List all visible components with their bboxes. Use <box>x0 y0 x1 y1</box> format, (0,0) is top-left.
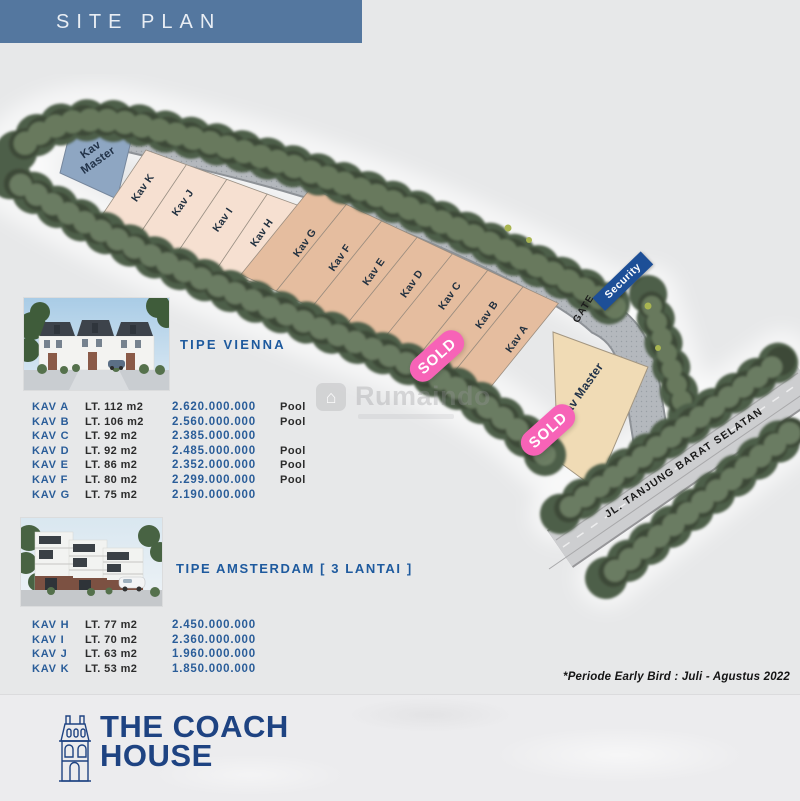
price-cell: 2.560.000.000 <box>172 416 280 428</box>
kav-cell: KAV D <box>32 445 85 457</box>
pool-cell: Pool <box>280 416 322 428</box>
watermark-subline <box>358 414 454 419</box>
table-row: KAV G LT. 75 m2 2.190.000.000 <box>32 487 322 502</box>
price-cell: 2.360.000.000 <box>172 634 280 646</box>
price-cell: 2.450.000.000 <box>172 619 280 631</box>
kav-cell: KAV K <box>32 663 85 675</box>
kav-cell: KAV I <box>32 634 85 646</box>
price-cell: 1.960.000.000 <box>172 648 280 660</box>
brand-line-2: HOUSE <box>100 741 289 770</box>
tipe-vienna-title: TIPE VIENNA <box>180 337 286 352</box>
price-cell: 2.352.000.000 <box>172 459 280 471</box>
table-row: KAV H LT. 77 m2 2.450.000.000 <box>32 618 280 633</box>
kav-cell: KAV E <box>32 459 85 471</box>
lt-cell: LT. 53 m2 <box>85 663 172 675</box>
price-cell: 1.850.000.000 <box>172 663 280 675</box>
table-row: KAV J LT. 63 m2 1.960.000.000 <box>32 647 280 662</box>
pool-cell: Pool <box>280 474 322 486</box>
pool-cell: Pool <box>280 459 322 471</box>
lt-cell: LT. 92 m2 <box>85 430 172 442</box>
site-plan-flyer: { "header": { "title": "SITE PLAN" }, "s… <box>0 0 800 800</box>
tipe-vienna-photo <box>24 298 169 390</box>
table-row: KAV A LT. 112 m2 2.620.000.000 Pool <box>32 400 322 415</box>
tipe-amsterdam-title: TIPE AMSTERDAM [ 3 LANTAI ] <box>176 561 413 576</box>
lt-cell: LT. 70 m2 <box>85 634 172 646</box>
table-row: KAV D LT. 92 m2 2.485.000.000 Pool <box>32 444 322 459</box>
lt-cell: LT. 75 m2 <box>85 489 172 501</box>
vienna-price-table: KAV A LT. 112 m2 2.620.000.000 Pool KAV … <box>32 400 322 502</box>
brand-line-1: THE COACH <box>100 712 289 741</box>
table-row: KAV K LT. 53 m2 1.850.000.000 <box>32 662 280 677</box>
kav-cell: KAV A <box>32 401 85 413</box>
lt-cell: LT. 106 m2 <box>85 416 172 428</box>
lt-cell: LT. 112 m2 <box>85 401 172 413</box>
early-bird-note: *Periode Early Bird : Juli - Agustus 202… <box>563 671 790 683</box>
price-cell: 2.620.000.000 <box>172 401 280 413</box>
table-row: KAV I LT. 70 m2 2.360.000.000 <box>32 633 280 648</box>
kav-cell: KAV F <box>32 474 85 486</box>
price-cell: 2.299.000.000 <box>172 474 280 486</box>
lt-cell: LT. 92 m2 <box>85 445 172 457</box>
page-title: SITE PLAN <box>0 0 362 44</box>
site-plan-header: SITE PLAN <box>0 0 362 43</box>
kav-cell: KAV H <box>32 619 85 631</box>
lt-cell: LT. 86 m2 <box>85 459 172 471</box>
amsterdam-price-table: KAV H LT. 77 m2 2.450.000.000 KAV I LT. … <box>32 618 280 676</box>
kav-cell: KAV C <box>32 430 85 442</box>
table-row: KAV F LT. 80 m2 2.299.000.000 Pool <box>32 473 322 488</box>
price-cell: 2.385.000.000 <box>172 430 280 442</box>
pool-cell: Pool <box>280 401 322 413</box>
kav-cell: KAV B <box>32 416 85 428</box>
tipe-amsterdam-photo <box>21 518 162 606</box>
table-row: KAV C LT. 92 m2 2.385.000.000 <box>32 429 322 444</box>
lt-cell: LT. 77 m2 <box>85 619 172 631</box>
price-cell: 2.485.000.000 <box>172 445 280 457</box>
price-cell: 2.190.000.000 <box>172 489 280 501</box>
lt-cell: LT. 63 m2 <box>85 648 172 660</box>
kav-cell: KAV G <box>32 489 85 501</box>
lt-cell: LT. 80 m2 <box>85 474 172 486</box>
table-row: KAV E LT. 86 m2 2.352.000.000 Pool <box>32 458 322 473</box>
table-row: KAV B LT. 106 m2 2.560.000.000 Pool <box>32 415 322 430</box>
kav-cell: KAV J <box>32 648 85 660</box>
brand-wordmark: THE COACH HOUSE <box>100 712 289 770</box>
pool-cell: Pool <box>280 445 322 457</box>
coach-house-logo-icon <box>57 711 93 783</box>
